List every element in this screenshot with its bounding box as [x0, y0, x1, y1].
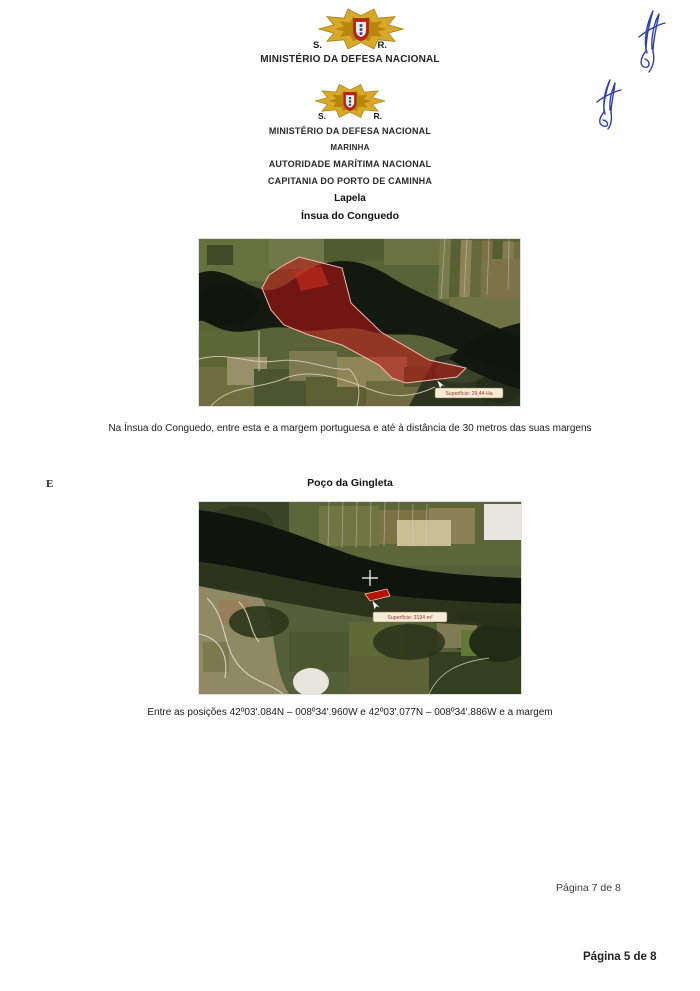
- initial-s: S.: [318, 111, 326, 121]
- area-label-text: Superfície: 29,44 Ha: [445, 391, 492, 397]
- scanned-document-page: S. R. MINISTÉRIO DA DEFESA NACIONAL S. R…: [0, 0, 700, 991]
- letterhead-line-capitania: CAPITANIA DO PORTO DE CAMINHA: [268, 176, 432, 186]
- area-label: Superfície: 3194 m²: [373, 612, 447, 622]
- sovereign-initials: S. R.: [313, 40, 387, 51]
- section-title-insua-conguedo: Ínsua do Conguedo: [301, 210, 399, 222]
- letterhead-line-ministerio: MINISTÉRIO DA DEFESA NACIONAL: [269, 126, 431, 136]
- letterhead-line-marinha: MARINHA: [330, 143, 369, 152]
- aerial-photo-insua-conguedo: Superfície: 29,44 Ha: [199, 239, 520, 406]
- initial-s: S.: [313, 40, 322, 51]
- caption-insua-conguedo: Na Ínsua do Conguedo, entre esta e a mar…: [0, 423, 700, 434]
- handwritten-initials-lower: [585, 78, 627, 130]
- page-number-upper: Página 7 de 8: [556, 882, 621, 894]
- header-national: S. R. MINISTÉRIO DA DEFESA NACIONAL: [0, 6, 700, 65]
- initial-r: R.: [378, 40, 388, 51]
- ministry-title: MINISTÉRIO DA DEFESA NACIONAL: [260, 54, 440, 65]
- section-title-poco-gingleta: Poço da Gingleta: [0, 477, 700, 489]
- caption-poco-gingleta: Entre as posições 42º03'.084N – 008º34'.…: [0, 707, 700, 718]
- area-label: Superfície: 29,44 Ha: [435, 388, 503, 398]
- handwritten-initials-upper: [619, 7, 673, 73]
- letterhead-line-autoridade: AUTORIDADE MARÍTIMA NACIONAL: [269, 159, 432, 169]
- aerial-photo-poco-gingleta: Superfície: 3194 m²: [199, 502, 521, 694]
- place-title-lapela: Lapela: [334, 193, 366, 204]
- sovereign-initials-small: S. R.: [318, 111, 382, 121]
- page-number-lower: Página 5 de 8: [583, 951, 657, 963]
- area-label-text: Superfície: 3194 m²: [387, 615, 433, 621]
- initial-r: R.: [374, 111, 383, 121]
